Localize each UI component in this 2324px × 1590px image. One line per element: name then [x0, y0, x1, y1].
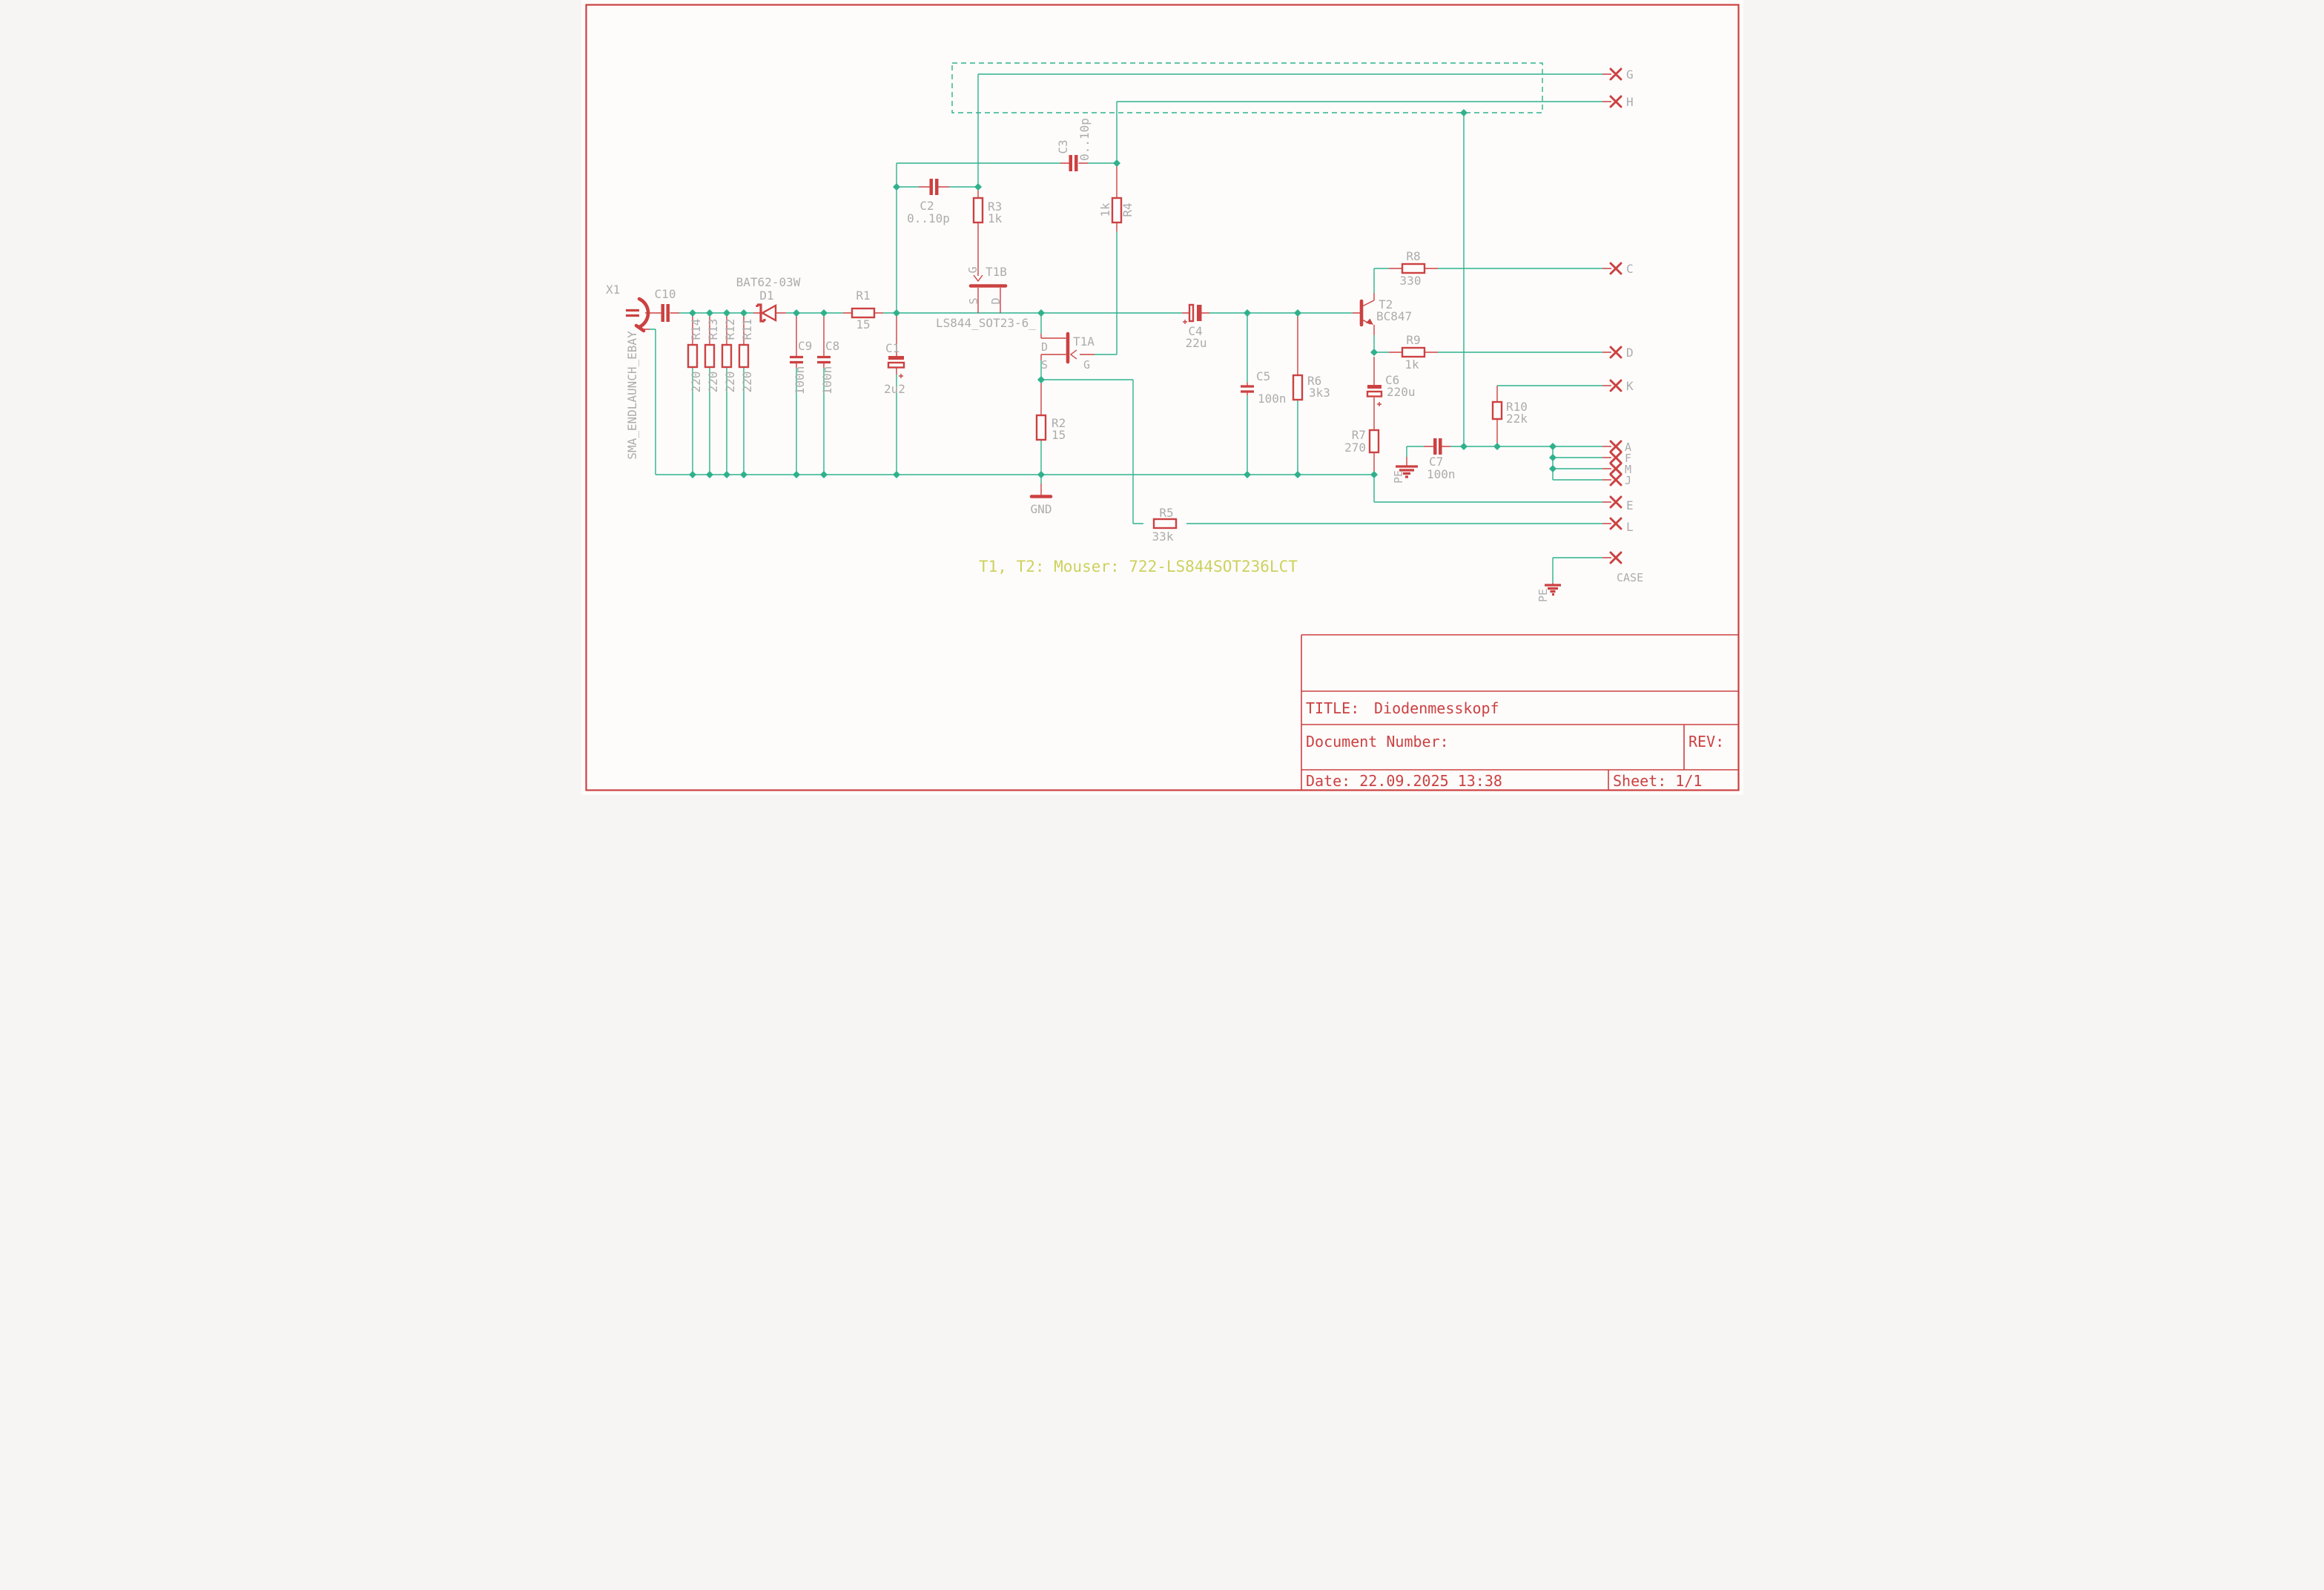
- r7-value: 270: [1344, 441, 1366, 455]
- r9-body: [1402, 348, 1425, 357]
- resistor-r2: R2 15: [1037, 415, 1066, 442]
- document-number-label: Document Number:: [1306, 733, 1449, 751]
- c1-name: C1: [885, 341, 899, 355]
- r9-name: R9: [1406, 333, 1420, 347]
- r5-body: [1154, 519, 1176, 528]
- schematic-sheet: X1 SMA_ENDLAUNCH_EBAY C10 R14 220 R13 22…: [581, 0, 1743, 795]
- junction-dots: [689, 109, 1557, 478]
- r11-value: 220: [740, 372, 754, 393]
- c7-plate: [1439, 438, 1442, 455]
- c6-plus-mark: [1377, 402, 1381, 406]
- t1-package-label: LS844_SOT23-6_: [936, 316, 1036, 330]
- transistor-t1a: D T1A S G: [1041, 334, 1095, 372]
- sheet-value: Sheet: 1/1: [1613, 772, 1702, 790]
- capacitor-c10: C10: [654, 287, 676, 322]
- c5-plates: [1241, 386, 1254, 392]
- resistor-r4: 1k R4: [1098, 198, 1135, 222]
- gnd-symbol: GND: [1030, 497, 1052, 517]
- r12-body: [722, 345, 731, 367]
- component-leads: [641, 74, 1611, 585]
- sma-shell-arc: [639, 299, 648, 327]
- resistor-r10: R10 22k: [1493, 400, 1528, 426]
- c9-plates: [790, 357, 803, 363]
- t1b-pin-s: S: [967, 297, 980, 304]
- pin-label-c: C: [1626, 262, 1634, 276]
- net-wires: [650, 74, 1602, 583]
- connector-pin-labels: G H C D K A F M J E L: [1625, 67, 1634, 534]
- capacitor-c8: C8 100n: [817, 339, 839, 395]
- pin-label-e: E: [1626, 498, 1634, 512]
- capacitor-c1: C1 2u2: [884, 341, 905, 396]
- pin-label-k: K: [1626, 379, 1634, 393]
- title-block: TITLE: Diodenmesskopf Document Number: R…: [1301, 635, 1738, 790]
- t2-type: BC847: [1376, 309, 1412, 323]
- r8-name: R8: [1406, 249, 1420, 263]
- t1b-pin-g: G: [966, 266, 980, 273]
- r6-body: [1293, 375, 1302, 400]
- r11-body: [739, 345, 748, 367]
- c6-value: 220u: [1387, 385, 1416, 399]
- c4-plate-hollow: [1189, 305, 1193, 321]
- pin-x-marks: [1611, 69, 1621, 563]
- gnd-label: GND: [1030, 502, 1052, 516]
- r1-body: [852, 309, 874, 317]
- r8-body: [1402, 264, 1425, 273]
- resistor-r1: R1 15: [852, 288, 874, 331]
- t1b-pin-d: D: [989, 297, 1003, 304]
- r7-body: [1370, 430, 1379, 452]
- c7-value: 100n: [1427, 467, 1456, 481]
- c1-value: 2u2: [884, 382, 905, 396]
- pin-label-l: L: [1626, 520, 1634, 534]
- d1-triangle: [762, 306, 776, 320]
- r1-name: R1: [856, 288, 870, 303]
- c10-plate: [666, 304, 670, 322]
- pin-label-g: G: [1626, 67, 1634, 82]
- title-block-lines: [1301, 635, 1738, 790]
- c8-name: C8: [825, 339, 839, 353]
- rev-label: REV:: [1688, 733, 1724, 751]
- c4-plate-solid: [1197, 305, 1202, 321]
- r12-value: 220: [723, 372, 737, 393]
- r3-value: 1k: [988, 211, 1003, 225]
- c3-name: C3: [1056, 139, 1070, 154]
- capacitor-c7: C7 100n: [1427, 438, 1456, 481]
- r4-name: R4: [1120, 202, 1135, 217]
- c1-plate-hollow: [888, 363, 904, 368]
- c3-plate: [1069, 155, 1072, 171]
- r9-value: 1k: [1404, 357, 1419, 372]
- resistor-r8: R8 330: [1399, 249, 1424, 288]
- r10-body: [1493, 402, 1502, 419]
- pin-label-j: J: [1625, 474, 1631, 487]
- r1-value: 15: [856, 317, 870, 331]
- case-pe-label: PE: [1536, 589, 1550, 602]
- d1-type: BAT62-03W: [736, 275, 800, 289]
- title-value: Diodenmesskopf: [1374, 699, 1499, 717]
- r10-value: 22k: [1506, 412, 1528, 426]
- pin-label-d: D: [1626, 346, 1634, 360]
- c8-plates: [817, 357, 831, 363]
- r5-name: R5: [1159, 506, 1173, 520]
- r6-value: 3k3: [1309, 386, 1330, 400]
- c5-value: 100n: [1258, 392, 1287, 406]
- resistor-r9: R9 1k: [1402, 333, 1425, 372]
- case-pin-label: CASE: [1617, 571, 1643, 584]
- r4-value: 1k: [1098, 202, 1112, 217]
- t1a-pin-s: S: [1041, 358, 1048, 372]
- schematic-canvas: X1 SMA_ENDLAUNCH_EBAY C10 R14 220 R13 22…: [581, 0, 1743, 795]
- transistor-t2: T2 BC847: [1361, 297, 1412, 325]
- pe-label: PE: [1392, 470, 1405, 484]
- capacitor-c4: C4 22u: [1183, 305, 1206, 350]
- r14-name: R14: [689, 319, 703, 340]
- connector-x1: X1 SMA_ENDLAUNCH_EBAY: [606, 283, 648, 460]
- r3-body: [974, 198, 983, 222]
- r13-body: [705, 345, 714, 367]
- sma-center-pin: [626, 311, 639, 316]
- d1-name: D1: [759, 288, 773, 303]
- x1-package-label: SMA_ENDLAUNCH_EBAY: [625, 331, 639, 460]
- c5-name: C5: [1256, 369, 1270, 383]
- transistor-t1b: G T1B S D: [966, 265, 1007, 305]
- c10-plate: [661, 304, 664, 322]
- t1a-pin-g: G: [1083, 358, 1090, 372]
- c2-plate: [929, 179, 933, 195]
- capacitor-c9: C9 100n: [790, 339, 812, 395]
- t1b-name: T1B: [986, 265, 1007, 279]
- c9-name: C9: [798, 339, 812, 353]
- t1a-gate-arrow: [1071, 350, 1077, 359]
- resistor-r3: R3 1k: [974, 198, 1003, 225]
- c4-value: 22u: [1185, 336, 1206, 350]
- resistor-r7: R7 270: [1344, 428, 1379, 455]
- date-value: Date: 22.09.2025 13:38: [1306, 772, 1502, 790]
- r2-value: 15: [1052, 428, 1066, 442]
- resistor-r12: R12 220: [722, 319, 737, 393]
- c7-plate: [1433, 438, 1437, 455]
- r8-value: 330: [1399, 274, 1421, 288]
- c3-value: 0..10p: [1077, 118, 1092, 161]
- guard-box-dashed: [952, 63, 1542, 113]
- resistor-r14: R14 220: [688, 319, 703, 393]
- resistor-r5: R5 33k: [1152, 506, 1175, 544]
- c2-plate: [935, 179, 939, 195]
- pe-earth-symbol: PE: [1392, 466, 1418, 484]
- t1a-name: T1A: [1073, 334, 1095, 349]
- title-label: TITLE:: [1306, 699, 1359, 717]
- r12-name: R12: [723, 319, 737, 340]
- t1a-pin-d: D: [1041, 340, 1048, 354]
- c9-value: 100n: [793, 366, 807, 395]
- mouser-note: T1, T2: Mouser: 722-LS844SOT236LCT: [979, 558, 1298, 575]
- r2-body: [1037, 415, 1046, 440]
- c2-value: 0..10p: [907, 211, 950, 225]
- r13-value: 220: [706, 372, 720, 393]
- r5-value: 33k: [1152, 530, 1173, 544]
- resistor-r13: R13 220: [705, 319, 720, 393]
- c4-plus-mark: [1183, 320, 1187, 324]
- c8-value: 100n: [820, 366, 834, 395]
- r13-name: R13: [706, 319, 720, 340]
- r11-name: R11: [740, 319, 754, 340]
- pin-label-h: H: [1626, 95, 1634, 109]
- c10-name: C10: [654, 287, 676, 301]
- r14-body: [688, 345, 697, 367]
- r14-value: 220: [689, 372, 703, 393]
- c1-plate-solid: [888, 356, 904, 360]
- sheet-frame: [586, 5, 1738, 791]
- c1-plus-mark: [899, 374, 903, 378]
- resistor-r6: R6 3k3: [1293, 374, 1330, 400]
- x1-name: X1: [606, 283, 620, 297]
- resistor-r11: R11 220: [739, 319, 754, 393]
- c6-plate-solid: [1367, 385, 1381, 389]
- t1b-gate-arrow: [974, 275, 983, 281]
- c6-plate-hollow: [1367, 392, 1381, 397]
- capacitor-c2: C2 0..10p: [907, 179, 950, 225]
